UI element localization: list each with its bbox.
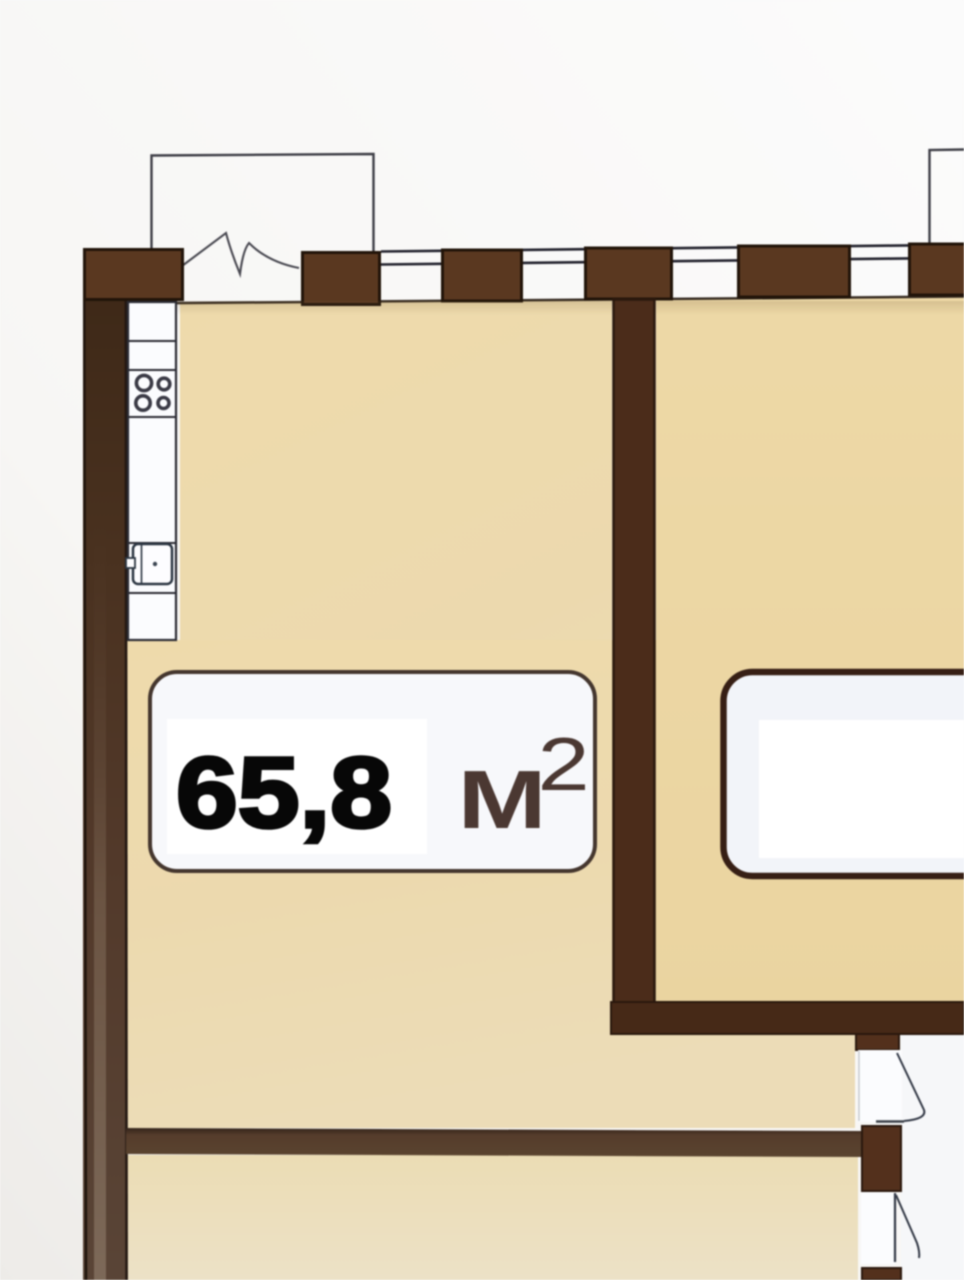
svg-text:2: 2: [538, 722, 590, 806]
svg-text:М: М: [458, 753, 547, 846]
svg-text:65,8: 65,8: [176, 737, 392, 849]
